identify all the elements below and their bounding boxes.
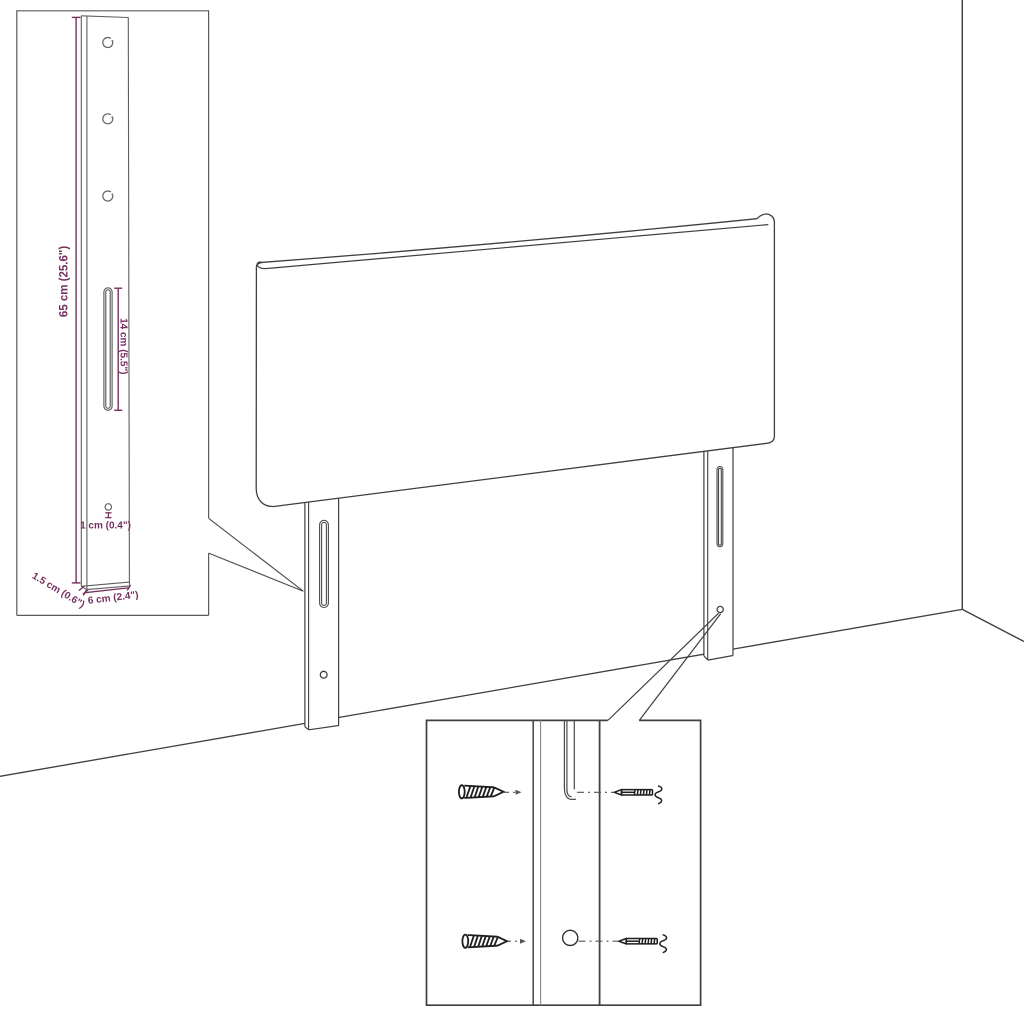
svg-text:65 cm (25.6"): 65 cm (25.6") xyxy=(59,246,71,317)
svg-text:1 cm (0.4"): 1 cm (0.4") xyxy=(80,520,131,531)
svg-text:14 cm (5.5"): 14 cm (5.5") xyxy=(117,318,128,374)
